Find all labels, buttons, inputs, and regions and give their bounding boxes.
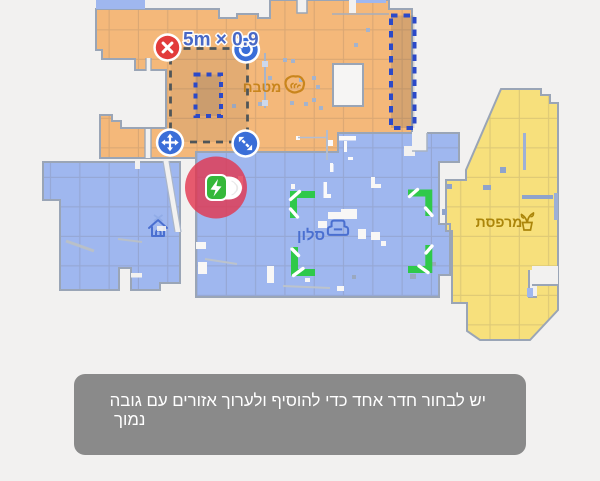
svg-text:מרפסת: מרפסת bbox=[476, 214, 523, 230]
svg-text:סלון: סלון bbox=[297, 227, 325, 244]
svg-text:5m × 0.9: 5m × 0.9 bbox=[183, 30, 259, 51]
